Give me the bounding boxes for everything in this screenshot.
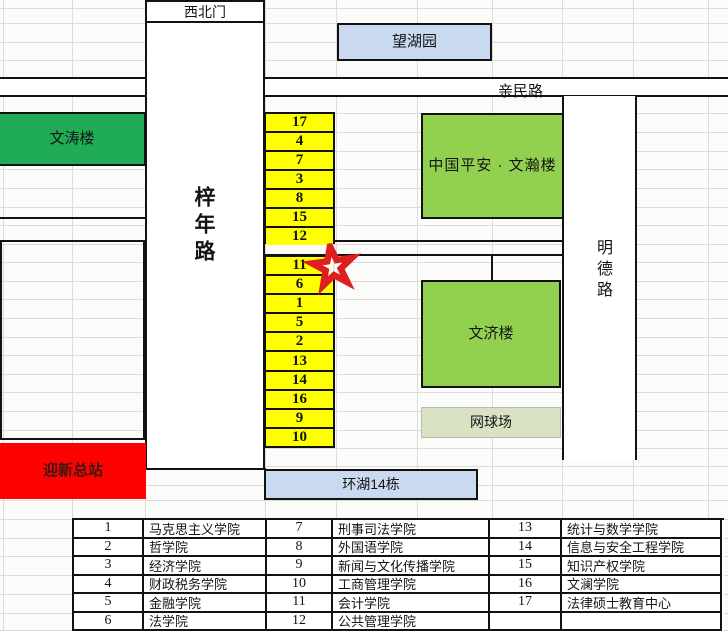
building-number-cell: 13 <box>266 352 333 371</box>
building-huanhu-14: 环湖14栋 <box>264 469 478 500</box>
building-wanghu-garden: 望湖园 <box>337 23 492 61</box>
legend-number: 1 <box>74 520 144 539</box>
huanhu-14-label: 环湖14栋 <box>342 477 400 492</box>
building-number-cell: 17 <box>266 114 333 133</box>
legend-number: 17 <box>490 594 562 613</box>
legend-name: 哲学院 <box>144 539 267 558</box>
wentao-label: 文涛楼 <box>49 131 94 148</box>
building-number-cell: 9 <box>266 410 333 429</box>
legend-number: 5 <box>74 594 144 613</box>
legend-name: 马克思主义学院 <box>144 520 267 539</box>
wanghu-garden-label: 望湖园 <box>392 34 437 51</box>
legend-name: 法律硕士教育中心 <box>562 594 722 613</box>
legend-number: 10 <box>267 576 333 595</box>
legend-name: 外国语学院 <box>333 539 490 558</box>
border-line <box>491 256 493 282</box>
welcome-station-label: 迎新总站 <box>43 463 103 480</box>
legend-name: 会计学院 <box>333 594 490 613</box>
northwest-gate-cell: 西北门 <box>147 0 263 23</box>
building-numbers-north: 1747381512 <box>264 112 335 244</box>
legend-name: 文澜学院 <box>562 576 722 595</box>
building-number-cell: 3 <box>266 171 333 190</box>
welcome-station: 迎新总站 <box>0 443 146 499</box>
empty-block-outline <box>0 240 145 440</box>
legend-name: 统计与数学学院 <box>562 520 722 539</box>
legend-name: 财政税务学院 <box>144 576 267 595</box>
building-wenji: 文济楼 <box>421 280 561 388</box>
legend-name: 刑事司法学院 <box>333 520 490 539</box>
building-number-cell: 8 <box>266 190 333 209</box>
border-line <box>0 217 146 219</box>
legend-number: 2 <box>74 539 144 558</box>
legend-number: 8 <box>267 539 333 558</box>
building-number-cell: 14 <box>266 372 333 391</box>
legend-number: 4 <box>74 576 144 595</box>
building-number-cell: 4 <box>266 133 333 152</box>
legend-name <box>562 613 722 631</box>
legend-number: 11 <box>267 594 333 613</box>
tennis-court: 网球场 <box>421 407 561 438</box>
building-number-cell: 7 <box>266 152 333 171</box>
legend-name: 信息与安全工程学院 <box>562 539 722 558</box>
legend-number: 14 <box>490 539 562 558</box>
qinmin-road-band: 亲民路 <box>0 77 728 97</box>
zinian-road-label: 梓年路 <box>188 186 218 267</box>
building-number-cell: 5 <box>266 314 333 333</box>
legend-name: 新闻与文化传播学院 <box>333 557 490 576</box>
legend-number: 7 <box>267 520 333 539</box>
legend-number: 9 <box>267 557 333 576</box>
building-number-cell: 16 <box>266 391 333 410</box>
legend-name: 工商管理学院 <box>333 576 490 595</box>
legend-number: 3 <box>74 557 144 576</box>
mingde-road-label: 明德路 <box>590 239 614 302</box>
legend-number: 12 <box>267 613 333 631</box>
legend-name: 公共管理学院 <box>333 613 490 631</box>
legend-name: 经济学院 <box>144 557 267 576</box>
legend-number: 13 <box>490 520 562 539</box>
legend-name: 知识产权学院 <box>562 557 722 576</box>
building-number-cell: 15 <box>266 209 333 228</box>
legend-number: 15 <box>490 557 562 576</box>
building-number-cell: 12 <box>266 228 333 245</box>
wenhan-label: 中国平安 · 文瀚楼 <box>428 158 556 175</box>
legend-table: 1马克思主义学院7刑事司法学院13统计与数学学院2哲学院8外国语学院14信息与安… <box>72 518 724 631</box>
building-number-cell: 2 <box>266 333 333 352</box>
building-wenhan: 中国平安 · 文瀚楼 <box>421 113 564 219</box>
wenji-label: 文济楼 <box>468 326 513 343</box>
legend-number <box>490 613 562 631</box>
campus-map: 亲民路 西北门 梓年路 明德路 望湖园 文涛楼 中国平安 · 文瀚楼 文济楼 网… <box>0 0 728 631</box>
northwest-gate-label: 西北门 <box>184 2 226 22</box>
legend-number: 6 <box>74 613 144 631</box>
gridline <box>0 8 728 9</box>
tennis-court-label: 网球场 <box>470 415 512 430</box>
building-number-cell: 1 <box>266 295 333 314</box>
building-wentao: 文涛楼 <box>0 112 146 166</box>
building-number-cell: 10 <box>266 429 333 446</box>
border-line <box>145 468 266 470</box>
legend-name: 金融学院 <box>144 594 267 613</box>
qinmin-road-label: 亲民路 <box>498 80 543 101</box>
legend-number: 16 <box>490 576 562 595</box>
gridline <box>0 500 728 501</box>
legend-name: 法学院 <box>144 613 267 631</box>
star-marker-icon <box>301 239 367 297</box>
